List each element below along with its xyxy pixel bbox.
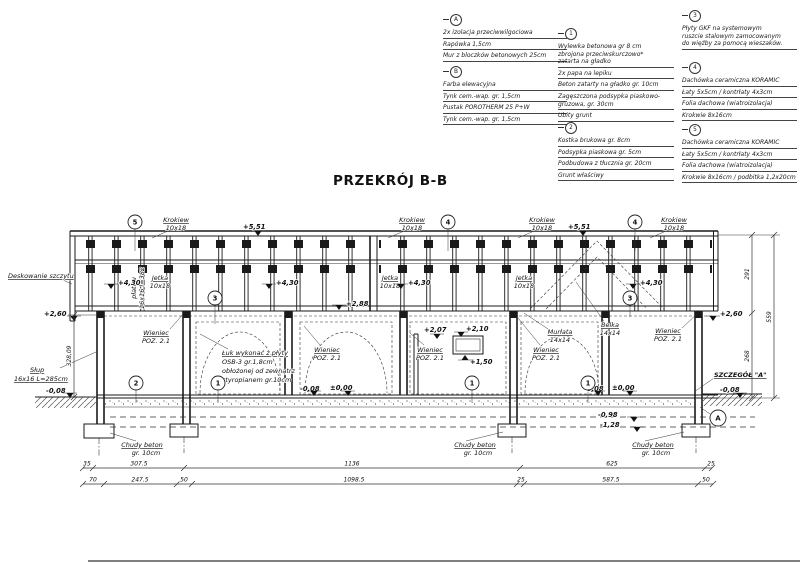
level-label: -0,98: [598, 411, 618, 419]
level-label: +4,30: [640, 279, 663, 287]
ref-marker-label: 2: [134, 379, 139, 387]
drawing-label: Wieniec: [417, 346, 443, 354]
architectural-drawing-page: { "title": "PRZEKRÓJ B-B", "legend": { "…: [0, 0, 800, 565]
level-label: +2,88: [346, 300, 369, 308]
level-marker-icon: [255, 231, 262, 236]
drawing-label: Chudy beton: [121, 441, 163, 449]
drawing-label: Deskowanie szczytu: [8, 272, 74, 280]
drawing-label: 16x16 L=285cm: [14, 375, 68, 383]
ref-marker-label: 1: [470, 379, 475, 387]
drawing-label: POZ. 2.1: [416, 354, 444, 362]
drawing-label: 10x18: [166, 224, 186, 232]
dimension-label: 247.5: [131, 477, 148, 484]
dimension-label: 307.5: [130, 461, 147, 468]
drawing-label: 10x18: [532, 224, 552, 232]
drawing-label: SZCZEGÓŁ "A": [714, 370, 767, 379]
floor-and-ground: [35, 394, 762, 408]
level-marker-icon: [580, 231, 587, 236]
drawing-label: 10x18: [514, 282, 534, 290]
drawing-label: gr. 10cm: [464, 449, 493, 457]
drawing-label: Krokiew: [529, 216, 555, 224]
drawing-label: styropianem gr.10cm: [222, 376, 291, 384]
dimension-label: 328,09: [66, 345, 73, 366]
level-label: +5,51: [243, 223, 265, 231]
dimension-label: 559: [766, 311, 773, 323]
drawing-label: Wieniec: [314, 346, 340, 354]
drawing-label: 14x14: [600, 329, 620, 337]
level-label: +2,60: [720, 310, 743, 318]
level-label: +4,30: [118, 279, 141, 287]
ref-marker-label: 4: [446, 218, 451, 226]
level-marker-icon: [634, 427, 641, 432]
dimension-label: 291: [744, 268, 751, 279]
drawing-label: Łuk wykonać z płyty: [221, 349, 288, 357]
ref-marker-label: 4: [633, 218, 638, 226]
ref-marker-label: 1: [586, 379, 591, 387]
level-label: +1,50: [470, 358, 493, 366]
drawing-label: 10x18: [150, 282, 170, 290]
ref-marker-label: 3: [213, 294, 218, 302]
dimension-label: 50: [180, 477, 188, 484]
level-label: +2,10: [466, 325, 489, 333]
level-label: +5,51: [568, 223, 590, 231]
dimension-label: 70: [89, 477, 97, 484]
drawing-label: Jetka: [514, 274, 532, 282]
drawing-label: obłożonej od zewnątrz: [222, 367, 296, 375]
level-marker-icon: [710, 316, 717, 321]
level-label: +2,07: [424, 326, 447, 334]
drawing-label: 10x18: [380, 282, 400, 290]
drawing-label: Jetka: [380, 274, 398, 282]
dimension-label: 1136: [344, 461, 359, 468]
dimension-label: 625: [606, 461, 618, 468]
ref-marker-label: 3: [628, 294, 633, 302]
drawing-label: 14x14: [550, 336, 570, 344]
level-marker-icon: [434, 334, 441, 339]
drawing-label: Wieniec: [143, 329, 169, 337]
level-label: +4,30: [408, 279, 431, 287]
drawing-label: Krokiew: [661, 216, 687, 224]
drawing-label: 10x18: [664, 224, 684, 232]
level-label: -1,28: [600, 421, 620, 429]
drawing-label: POZ. 2.1: [313, 354, 341, 362]
drawing-label: Jetka: [150, 274, 168, 282]
dimension-label: 268: [744, 350, 751, 362]
dimension-label: 50: [702, 477, 710, 484]
ref-marker-label: 5: [133, 218, 138, 226]
dimension-label: 25: [707, 461, 715, 468]
dimension-label: 25: [517, 477, 525, 484]
dimension-label: 1098.5: [344, 477, 365, 484]
drawing-label: Chudy beton: [454, 441, 496, 449]
drawing-label: Krokiew: [163, 216, 189, 224]
drawing-label: POZ. 2.1: [532, 354, 560, 362]
drawing-label: 10x18: [402, 224, 422, 232]
dimension-label: 587.5: [602, 477, 619, 484]
level-marker-icon: [462, 355, 469, 360]
drawing-label: OSB-3 gr.1,8cm: [222, 358, 273, 366]
dimension-label: 35: [83, 461, 91, 468]
drawing-label: 16x16 l=382: [138, 267, 146, 309]
drawing-label: Wieniec: [655, 327, 681, 335]
drawing-label: gr. 10cm: [132, 449, 161, 457]
level-label: +4,30: [276, 279, 299, 287]
drawing-label: Belka: [601, 321, 619, 329]
level-marker-icon: [631, 417, 638, 422]
drawing-label: Wieniec: [533, 346, 559, 354]
section-drawing: Krokiew10x18Krokiew10x18Krokiew10x18Krok…: [0, 0, 800, 565]
drawing-label: Krokiew: [399, 216, 425, 224]
ref-marker-label: 1: [216, 379, 221, 387]
ref-marker-label: A: [715, 414, 721, 422]
level-label: +2,60: [44, 310, 67, 318]
drawing-label: POZ. 2.1: [654, 335, 682, 343]
drawing-label: Chudy beton: [632, 441, 674, 449]
level-label: -0,08: [46, 387, 66, 395]
drawing-label: Słup: [30, 366, 44, 374]
drawing-label: POZ. 2.1: [142, 337, 170, 345]
drawing-label: gr. 10cm: [642, 449, 671, 457]
drawing-label: Murłata: [548, 328, 573, 336]
